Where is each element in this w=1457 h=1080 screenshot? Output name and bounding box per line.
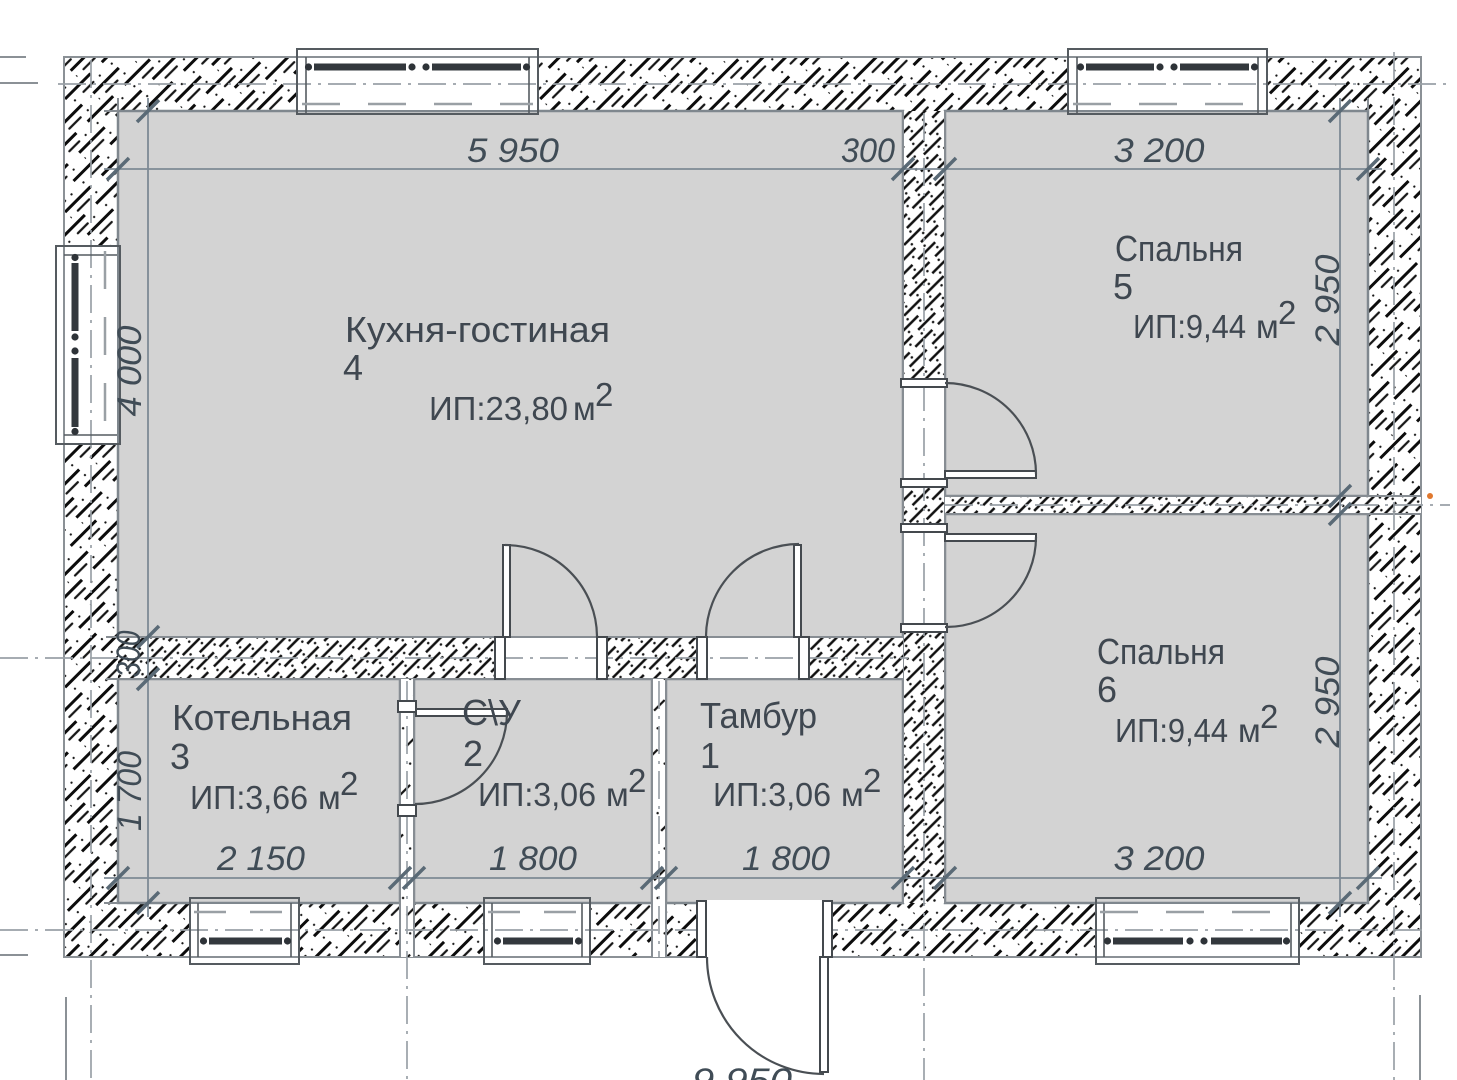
svg-text:5 950: 5 950	[467, 132, 559, 170]
svg-text:ИП:9,44: ИП:9,44	[1115, 712, 1228, 749]
svg-text:5: 5	[1113, 266, 1133, 307]
svg-text:м: м	[1256, 308, 1279, 345]
svg-text:ИП:3,06: ИП:3,06	[478, 776, 596, 813]
svg-text:3: 3	[170, 736, 190, 777]
svg-text:2: 2	[1278, 294, 1296, 331]
svg-text:2: 2	[463, 733, 483, 774]
svg-text:2 150: 2 150	[216, 840, 305, 878]
svg-text:м: м	[318, 779, 341, 816]
svg-text:м: м	[573, 390, 596, 427]
svg-text:9 950: 9 950	[692, 1062, 792, 1080]
svg-text:1 700: 1 700	[111, 751, 149, 831]
svg-text:2: 2	[628, 762, 646, 799]
svg-text:м: м	[1238, 712, 1261, 749]
svg-text:2: 2	[595, 376, 613, 413]
svg-text:Кухня-гостиная: Кухня-гостиная	[345, 309, 610, 350]
svg-text:2: 2	[1260, 698, 1278, 735]
svg-text:ИП:9,44: ИП:9,44	[1133, 308, 1246, 345]
svg-text:4 000: 4 000	[111, 325, 149, 416]
svg-text:Тамбур: Тамбур	[700, 695, 817, 736]
svg-text:м: м	[841, 776, 864, 813]
svg-text:2 950: 2 950	[1309, 254, 1347, 346]
svg-text:2: 2	[863, 762, 881, 799]
svg-text:300: 300	[110, 630, 148, 677]
svg-text:Спальня: Спальня	[1097, 631, 1225, 672]
svg-text:1 800: 1 800	[489, 840, 577, 878]
svg-text:3 200: 3 200	[1114, 132, 1205, 170]
svg-text:4: 4	[343, 347, 363, 388]
svg-text:1: 1	[700, 735, 720, 776]
svg-text:м: м	[606, 776, 629, 813]
svg-text:ИП:23,80: ИП:23,80	[429, 390, 568, 427]
svg-text:С\У: С\У	[462, 692, 522, 733]
svg-text:2 950: 2 950	[1309, 656, 1347, 748]
svg-text:3 200: 3 200	[1114, 840, 1205, 878]
svg-text:Котельная: Котельная	[172, 697, 352, 738]
svg-text:300: 300	[841, 132, 895, 170]
svg-text:ИП:3,06: ИП:3,06	[713, 776, 831, 813]
svg-text:ИП:3,66: ИП:3,66	[190, 779, 308, 816]
svg-text:1 800: 1 800	[742, 840, 830, 878]
svg-text:Спальня: Спальня	[1115, 228, 1243, 269]
svg-text:2: 2	[340, 765, 358, 802]
svg-text:6: 6	[1097, 669, 1117, 710]
